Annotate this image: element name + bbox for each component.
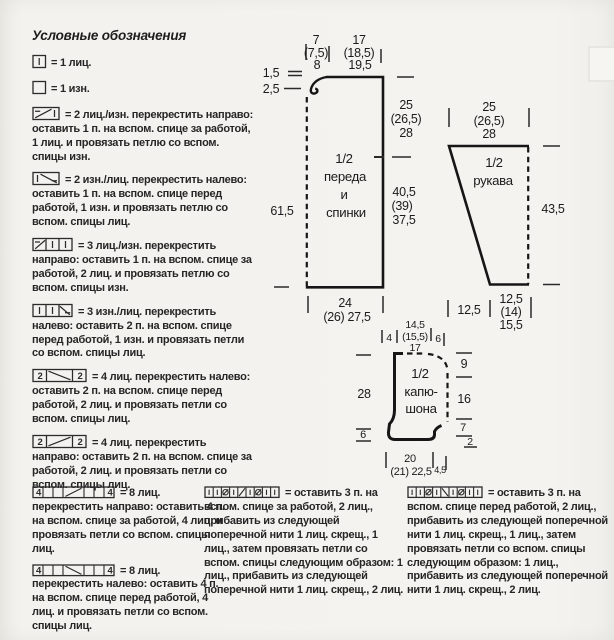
cross-increase-left-icon (407, 486, 484, 499)
legend-item-text: = оставить 3 п. на вспом. спице перед ра… (407, 487, 608, 596)
hood-bottom2: (21) 22,5 (390, 466, 432, 478)
hood-bottom1: 20 (404, 453, 416, 465)
fb-side-upper1: 25 (399, 98, 413, 112)
fb-side-lower3: 37,5 (392, 213, 415, 227)
cable-4-left-icon: 22 (32, 368, 88, 383)
sleeve-bottom2: (14) (500, 305, 521, 319)
sleeve-top1: 25 (482, 100, 496, 114)
fb-label-3: и (340, 187, 347, 202)
hood-label-3: шона (405, 401, 437, 416)
purl-stitch-cell-icon (32, 80, 47, 95)
cross-2-right-icon (32, 106, 61, 121)
sleeve-height: 43,5 (541, 202, 564, 216)
hood-front-lower-seg: 6 (360, 429, 366, 441)
svg-text:2: 2 (38, 371, 43, 382)
fb-neck-size2: (18,5) (344, 46, 375, 60)
svg-text:4: 4 (36, 565, 42, 576)
legend-item-increase-right: = оставить 3 п. на вспом. спице за работ… (204, 486, 404, 598)
hood-back-height: 28 (357, 387, 371, 401)
front-back-outline (306, 77, 383, 287)
hood-right-top: 9 (461, 357, 468, 371)
fb-neck-size1: 17 (352, 33, 366, 47)
legend-item-cable8-left: 44= 8 лиц. перекрестить налево: оставить… (32, 564, 230, 635)
hood-fold-corner (428, 354, 448, 370)
legend-item-text: = 2 лиц./изн. перекрестить направо: оста… (32, 109, 253, 163)
hood-top-mid1: 14,5 (405, 319, 425, 331)
hood-right-mid: 16 (457, 392, 471, 406)
legend-item-cable8-right: 44= 8 лиц. перекрестить направо: оставит… (32, 486, 230, 557)
legend-column: Условные обозначения = 1 лиц. = 1 изн. =… (32, 28, 256, 500)
fb-bottom-width1: 24 (338, 296, 352, 310)
fb-label-1: 1/2 (335, 151, 352, 166)
legend-item-text: = оставить 3 п. на вспом. спице за работ… (204, 487, 403, 596)
measurement-ticks (274, 44, 560, 470)
fb-shoulder-size3: 8 (314, 58, 321, 72)
knitting-pattern-page: Условные обозначения = 1 лиц. = 1 изн. =… (0, 0, 614, 640)
svg-text:2: 2 (78, 437, 83, 448)
sleeve-top2: (26,5) (474, 114, 505, 128)
legend-item-cross2-left: = 2 изн./лиц. перекрестить налево: остав… (32, 171, 256, 230)
legend-item-purl: = 1 изн. (32, 80, 256, 97)
hood-label-2: капю- (404, 384, 437, 399)
fb-shoulder-size1: 7 (313, 33, 320, 47)
svg-text:4: 4 (108, 565, 114, 576)
legend-item-cross3-right: = 3 лиц./изн. перекрестить направо: оста… (32, 237, 256, 296)
hood-right-corner: 2 (467, 436, 473, 448)
fb-neck-size3: 19,5 (348, 58, 371, 72)
cross-3-right-icon (32, 237, 74, 252)
legend-bottom-col3: = оставить 3 п. на вспом. спице перед ра… (407, 486, 610, 605)
sleeve-bottom-slant: 12,5 (457, 303, 480, 317)
legend-item-knit: = 1 лиц. (32, 54, 256, 71)
legend-item-cross3-left: = 3 изн./лиц. перекрестить налево: остав… (32, 303, 256, 362)
cross-3-left-icon (32, 303, 74, 318)
scan-artifact (588, 46, 614, 82)
legend-item-cable4-right: 22= 4 лиц. перекрестить направо: оставит… (32, 434, 256, 493)
page-title: Условные обозначения (32, 28, 256, 43)
legend-item-cross2-right: = 2 лиц./изн. перекрестить направо: оста… (32, 106, 256, 165)
sleeve-outline (449, 146, 529, 285)
hood-bottom-right-seg: 4,5 (434, 465, 446, 475)
legend-item-text: = 1 лиц. (51, 57, 91, 69)
hood-label-1: 1/2 (411, 366, 428, 381)
sleeve-bottom3: 15,5 (499, 318, 522, 332)
cable-8-left-icon: 44 (32, 564, 116, 577)
cable-8-right-icon: 44 (32, 486, 116, 499)
legend-item-increase-left: = оставить 3 п. на вспом. спице перед ра… (407, 486, 610, 598)
sleeve-bottom1: 12,5 (499, 292, 522, 306)
fb-height: 61,5 (270, 204, 293, 218)
fb-shoulder-size2: (7,5) (304, 46, 328, 60)
svg-text:2: 2 (78, 371, 83, 382)
fb-bottom-width2: (26) 27,5 (323, 310, 371, 324)
legend-item-cable4-left: 22= 4 лиц. перекрестить налево: оставить… (32, 368, 256, 427)
hood-top-left-seg: 4 (386, 332, 392, 344)
legend-item-text: = 1 изн. (51, 83, 90, 95)
knit-stitch-cell-icon (32, 54, 47, 69)
cross-increase-right-icon (204, 486, 281, 499)
fb-label-4: спинки (326, 205, 366, 220)
hood-top-right-seg: 6 (435, 333, 441, 345)
sleeve-label-1: 1/2 (485, 155, 502, 170)
fb-neck-depth-large: 2,5 (263, 82, 280, 96)
fb-side-lower2: (39) (391, 199, 412, 213)
legend-item-text: = 2 изн./лиц. перекрестить налево: остав… (32, 174, 247, 228)
sleeve-top3: 28 (482, 127, 496, 141)
fb-side-upper3: 28 (399, 126, 413, 140)
sleeve-label-2: рукава (473, 173, 514, 188)
hood-right-low: 7 (460, 422, 466, 434)
fb-neck-depth-small: 1,5 (263, 66, 280, 80)
fb-side-upper2: (26,5) (391, 112, 422, 126)
cable-4-right-icon: 22 (32, 434, 88, 449)
fb-label-2: переда (324, 169, 367, 184)
svg-text:2: 2 (38, 437, 43, 448)
front-back-neck-curve (311, 77, 327, 94)
legend-bottom-col2: = оставить 3 п. на вспом. спице за работ… (204, 486, 404, 605)
hood-outline (388, 354, 441, 440)
hood-top-mid3: 17 (409, 342, 421, 354)
hood-top-mid2: (15,5) (402, 331, 428, 343)
cross-2-left-icon (32, 171, 61, 186)
fb-side-lower1: 40,5 (392, 185, 415, 199)
legend-bottom-col1: 44= 8 лиц. перекрестить направо: оставит… (32, 486, 230, 640)
